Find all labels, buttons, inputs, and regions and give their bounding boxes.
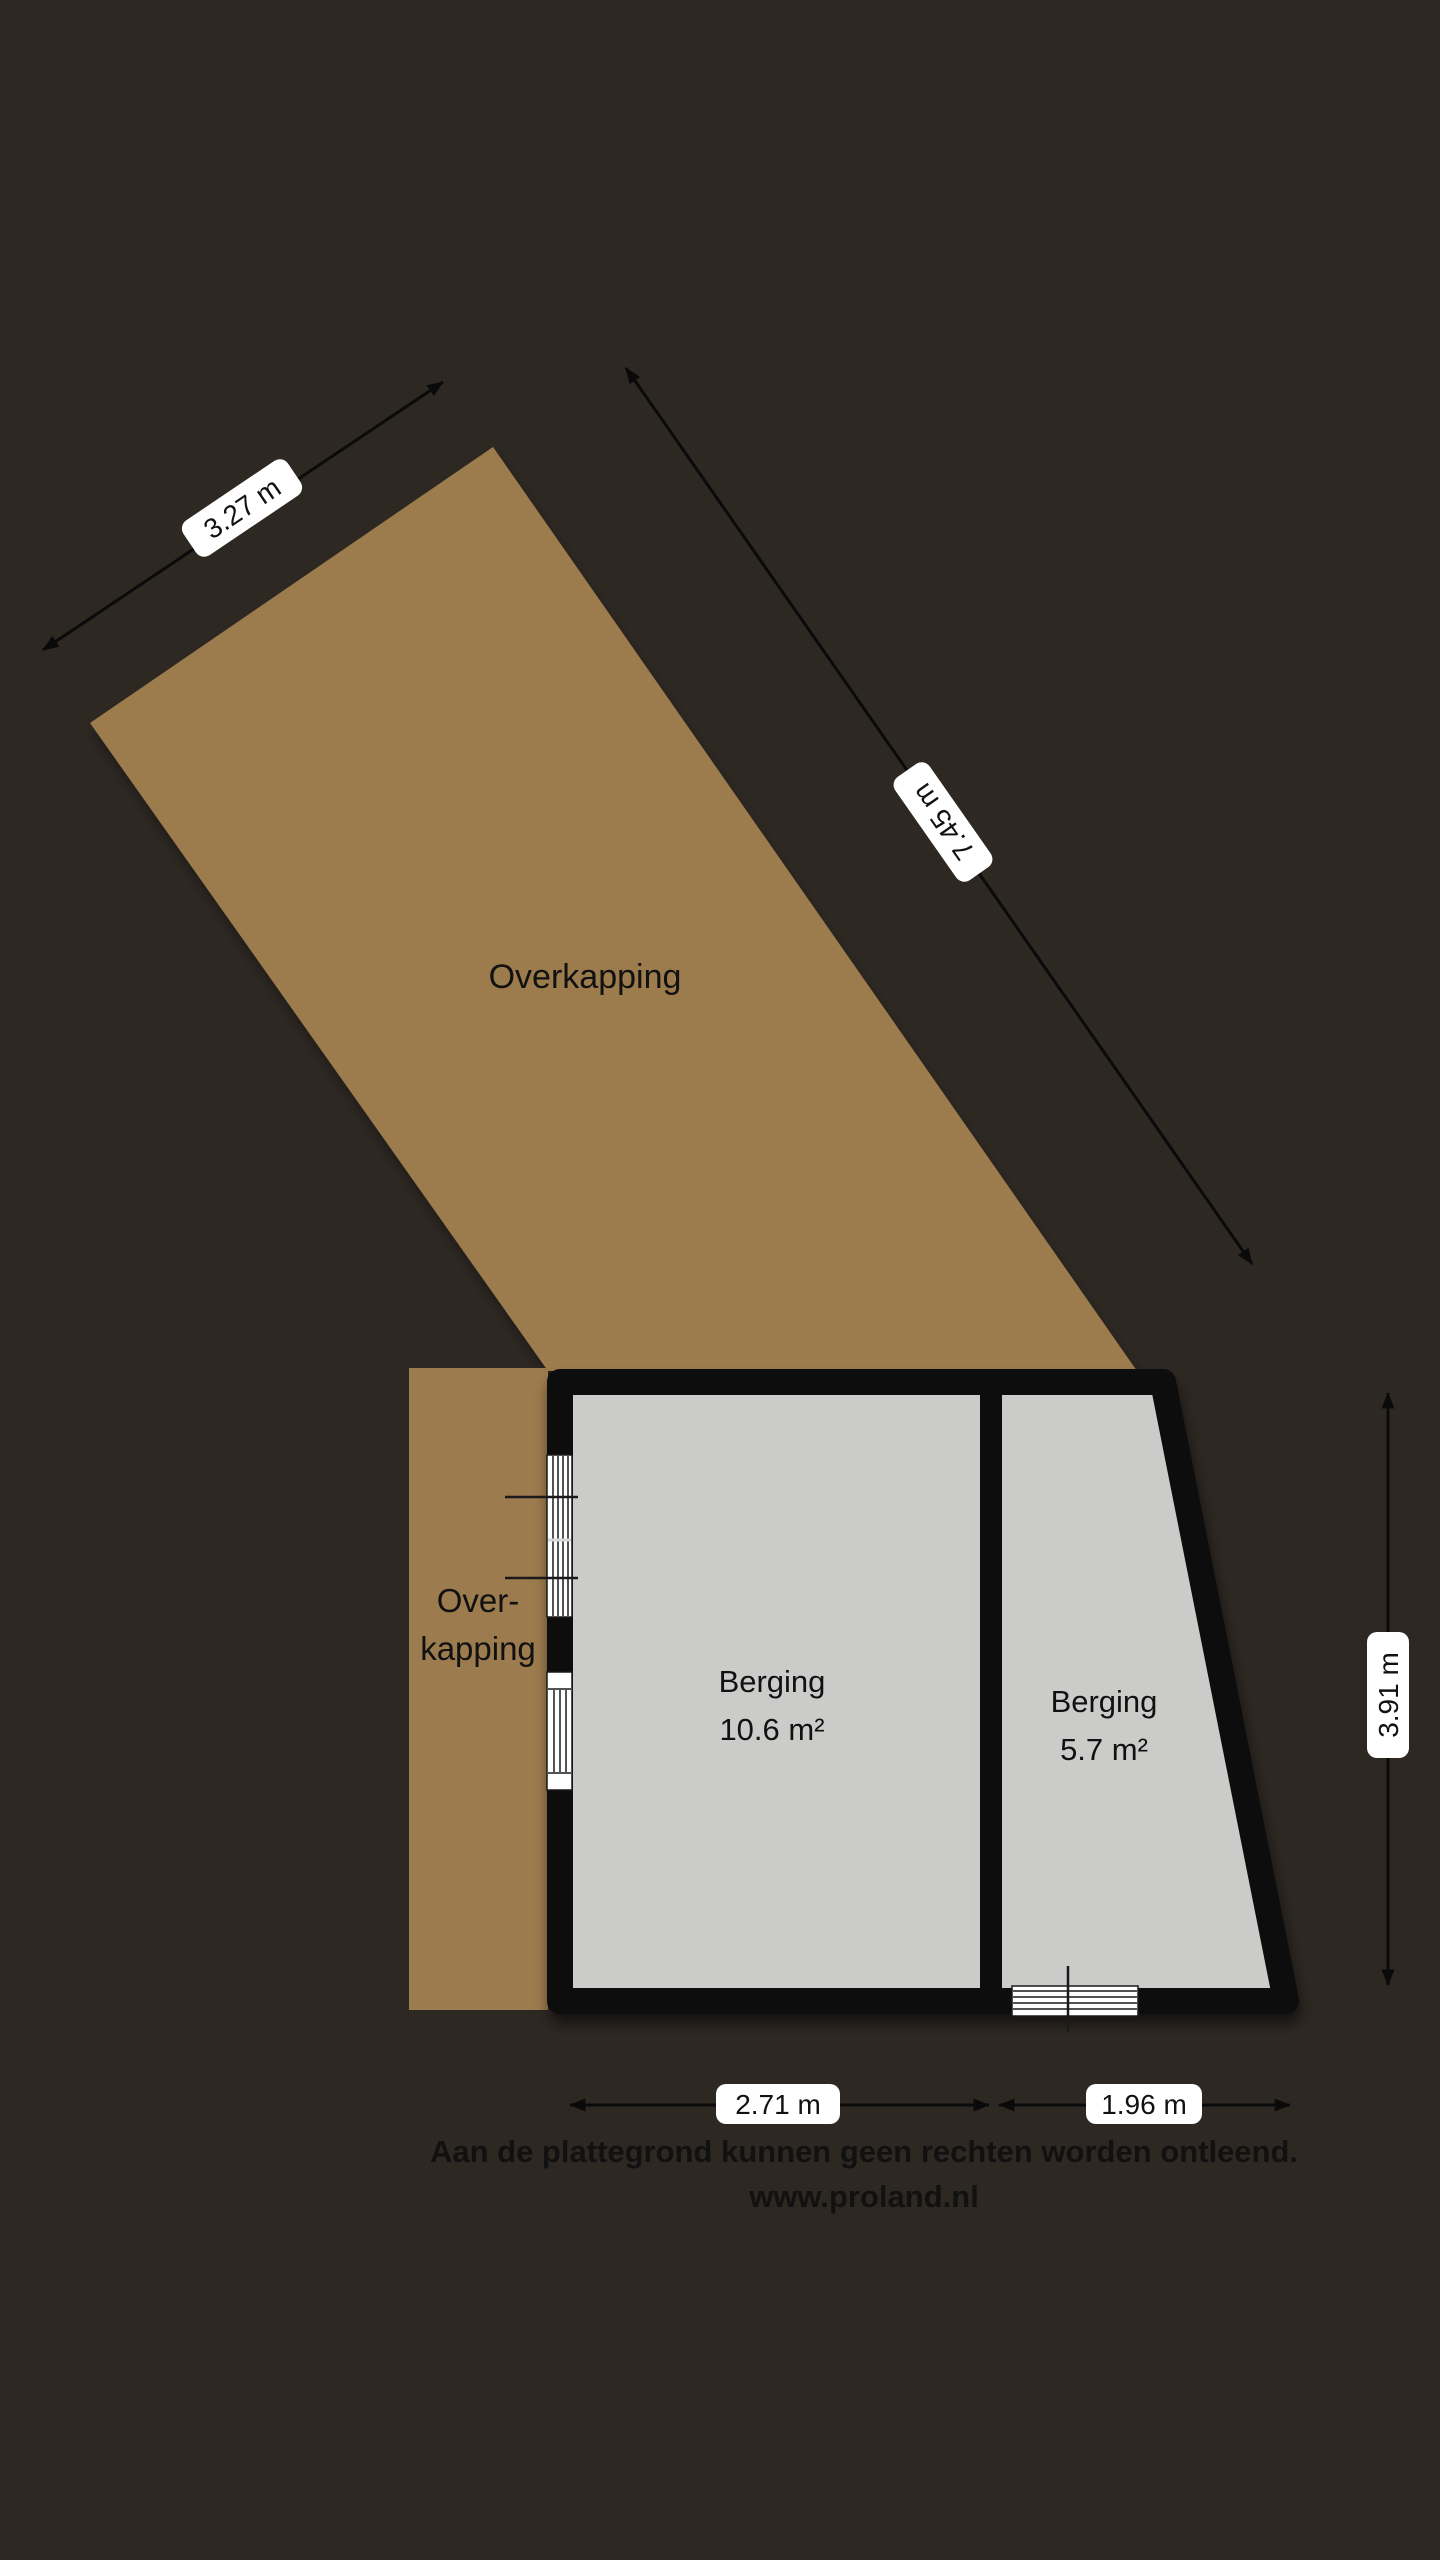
floorplan-page: 3.27 m 7.45 m 3.91 m 2.71 m 1.96 m Overk… (0, 0, 1440, 2560)
disclaimer-line1: Aan de plattegrond kunnen geen rechten w… (430, 2134, 1298, 2169)
svg-text:3.91 m: 3.91 m (1373, 1652, 1404, 1738)
room2-area: 5.7 m² (1060, 1732, 1148, 1767)
dimension-label-building-depth: 3.91 m (1367, 1632, 1409, 1758)
svg-text:1.96 m: 1.96 m (1101, 2089, 1187, 2120)
dimension-label-room1-width: 2.71 m (716, 2084, 840, 2124)
room1-area: 10.6 m² (719, 1712, 824, 1747)
floorplan-canvas: 3.27 m 7.45 m 3.91 m 2.71 m 1.96 m Overk… (0, 0, 1440, 2560)
canopy-roof-label: Overkapping (489, 958, 682, 996)
svg-text:2.71 m: 2.71 m (735, 2089, 821, 2120)
canopy-side-label-line1: Over- (437, 1582, 520, 1619)
room1-name: Berging (719, 1664, 826, 1699)
room2-name: Berging (1051, 1684, 1158, 1719)
canopy-side-label-line2: kapping (420, 1630, 536, 1667)
canopy-side-strip (409, 1368, 548, 2010)
building-outline (560, 1382, 1286, 2001)
window-lower (547, 1672, 572, 1790)
disclaimer-line2: www.proland.nl (748, 2179, 979, 2214)
dimension-label-room2-width: 1.96 m (1086, 2084, 1202, 2124)
building (560, 1382, 1286, 2001)
